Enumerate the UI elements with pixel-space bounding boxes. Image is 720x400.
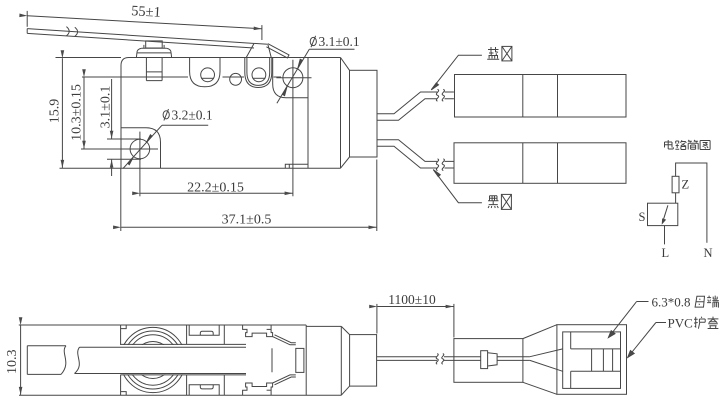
svg-text:PVC: PVC	[668, 316, 693, 331]
svg-text:1100±10: 1100±10	[388, 292, 436, 307]
svg-text:S: S	[639, 210, 646, 224]
svg-text:L: L	[662, 246, 670, 260]
svg-text:Z: Z	[682, 178, 690, 192]
svg-text:15.9: 15.9	[48, 99, 63, 124]
svg-text:6.3*0.8: 6.3*0.8	[652, 295, 691, 310]
svg-text:10.3: 10.3	[5, 350, 20, 375]
svg-text:3.2±0.1: 3.2±0.1	[172, 108, 213, 123]
svg-text:3.1±0.1: 3.1±0.1	[99, 86, 114, 129]
svg-text:22.2±0.15: 22.2±0.15	[187, 181, 244, 196]
svg-text:37.1±0.5: 37.1±0.5	[222, 213, 272, 228]
svg-text:55±1: 55±1	[131, 3, 162, 21]
svg-text:10.3±0.15: 10.3±0.15	[70, 84, 85, 141]
svg-text:N: N	[704, 246, 713, 260]
svg-text:3.1±0.1: 3.1±0.1	[319, 34, 360, 49]
